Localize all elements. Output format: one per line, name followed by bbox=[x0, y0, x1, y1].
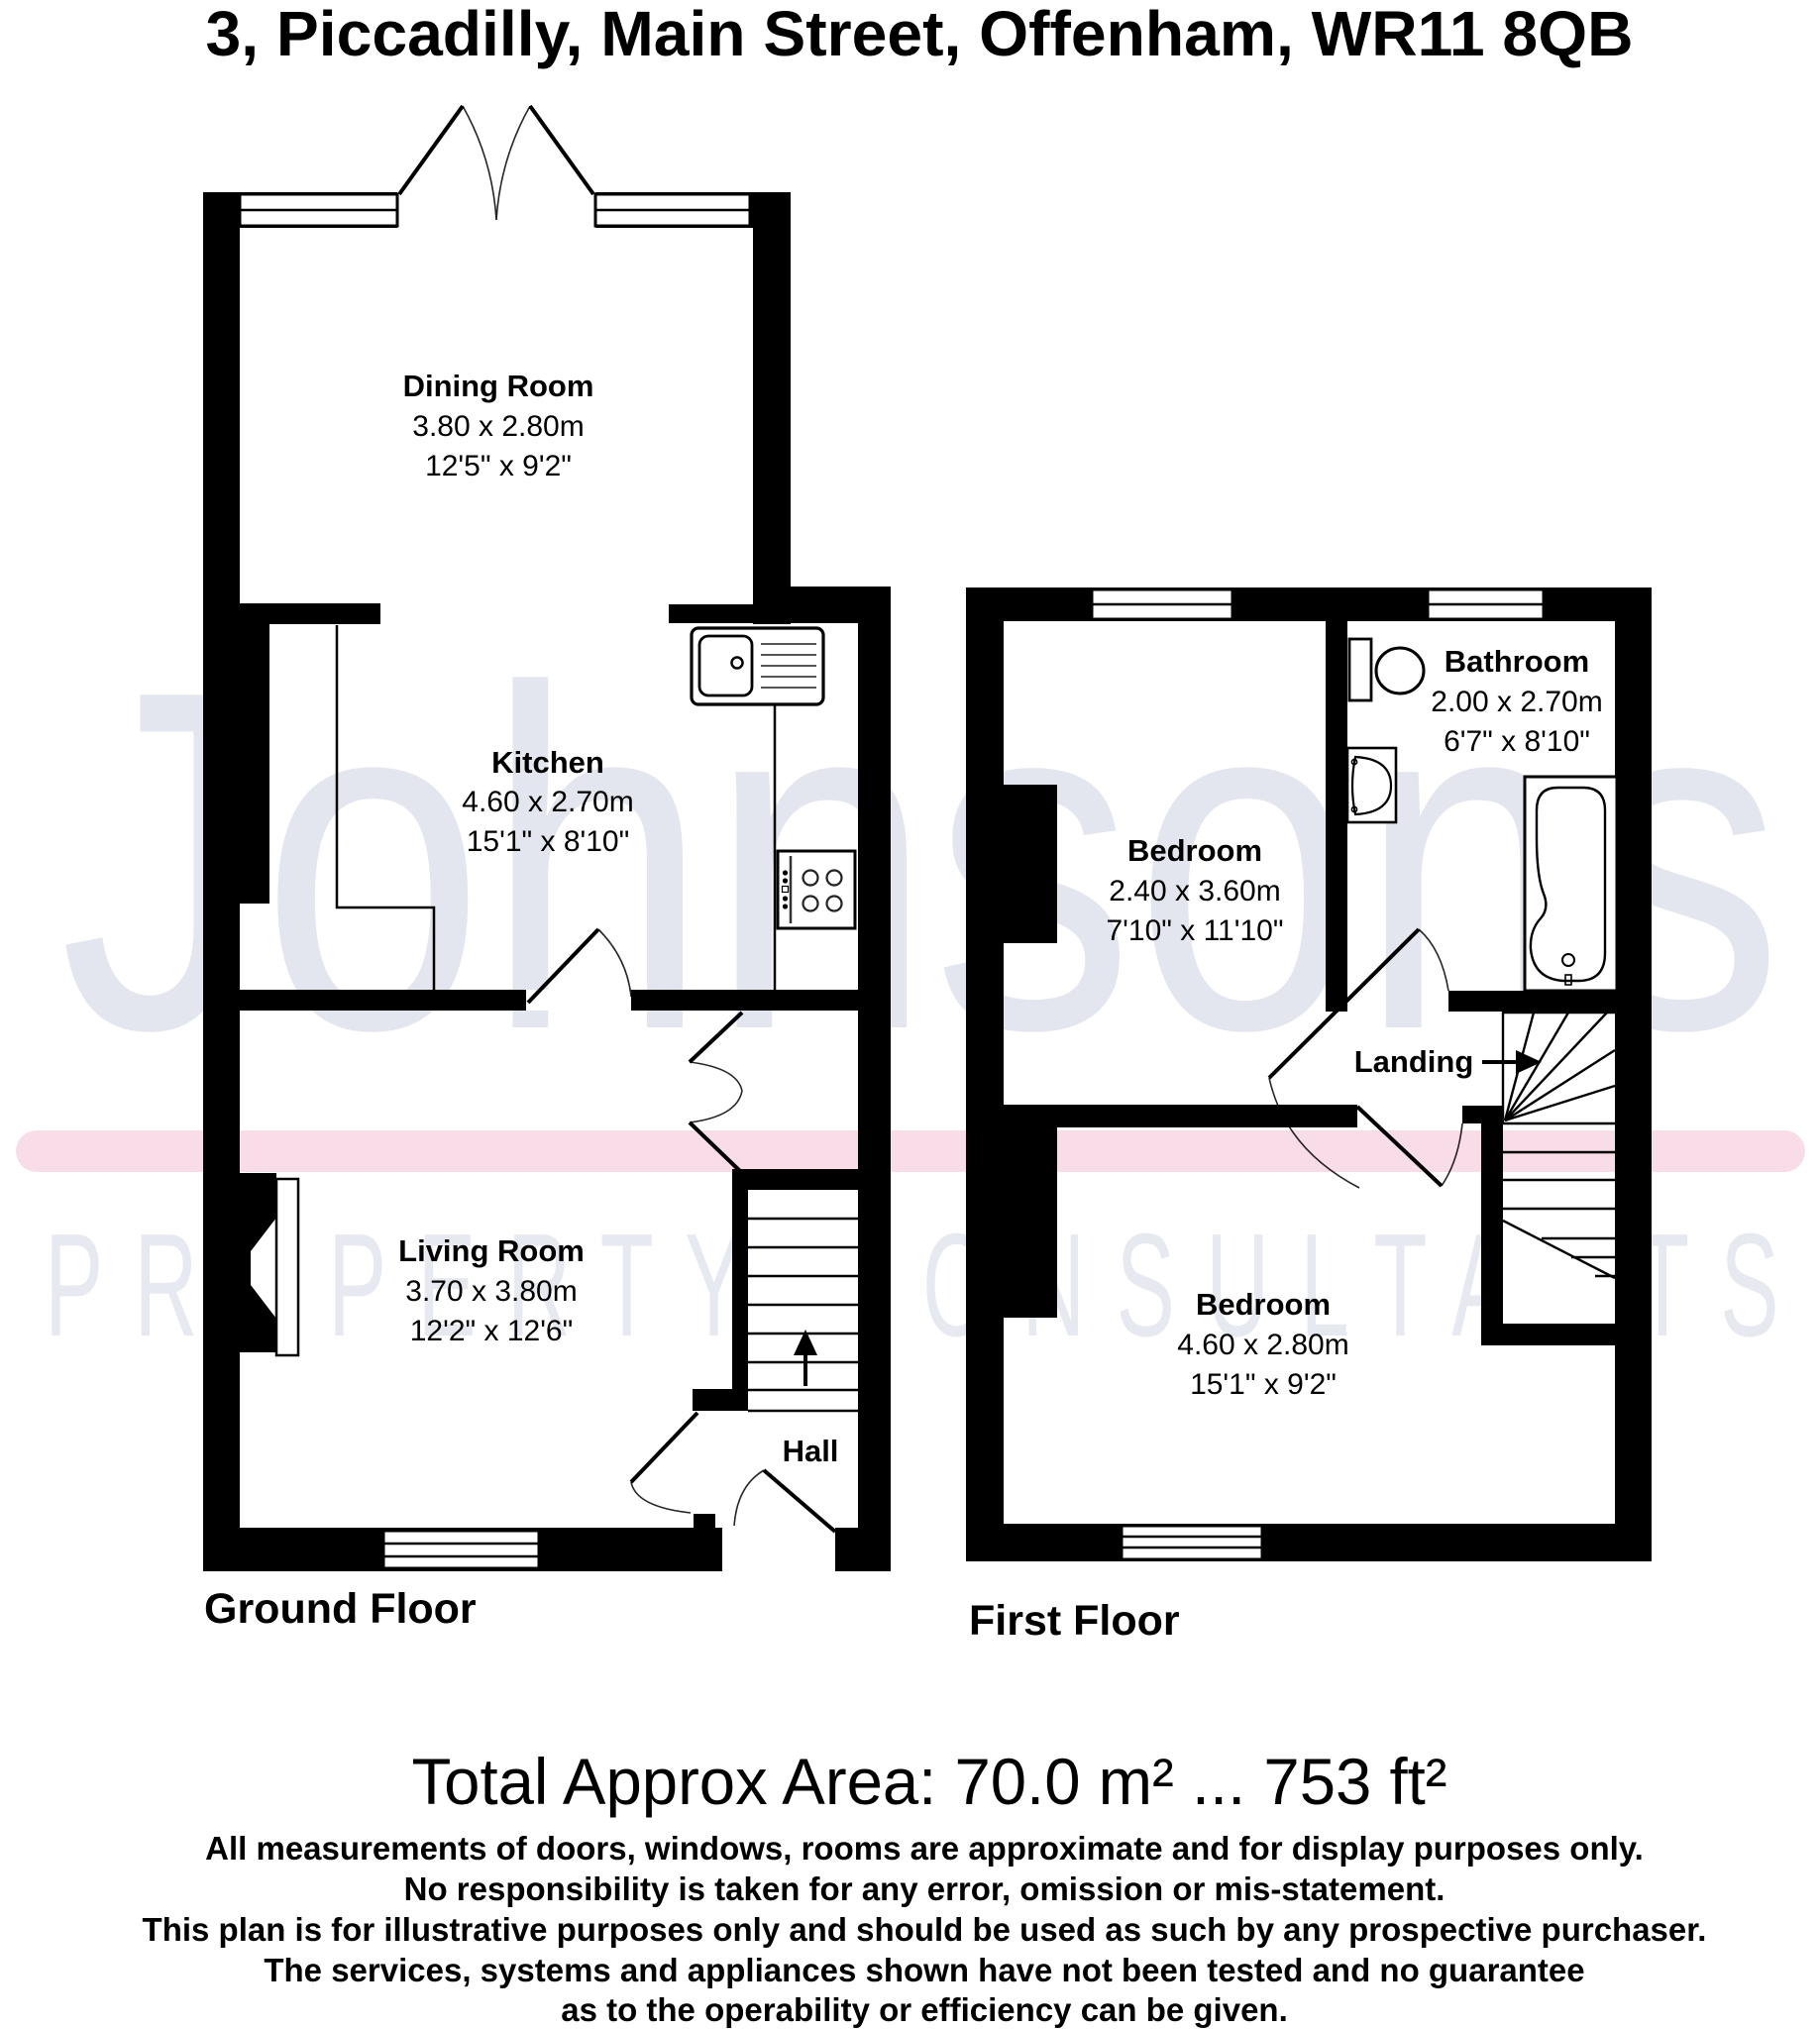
svg-text:Bathroom: Bathroom bbox=[1445, 644, 1589, 679]
svg-text:Living Room: Living Room bbox=[398, 1233, 585, 1268]
svg-text:6'7" x 8'10": 6'7" x 8'10" bbox=[1444, 725, 1590, 758]
svg-text:4.60 x 2.70m: 4.60 x 2.70m bbox=[462, 786, 633, 818]
svg-text:2.00 x 2.70m: 2.00 x 2.70m bbox=[1431, 686, 1602, 718]
svg-text:7'10" x 11'10": 7'10" x 11'10" bbox=[1107, 914, 1284, 947]
svg-text:Dining Room: Dining Room bbox=[403, 369, 594, 403]
svg-text:Total Approx Area: 70.0 m² ...: Total Approx Area: 70.0 m² ... 753 ft² bbox=[412, 1745, 1447, 1818]
svg-text:Landing: Landing bbox=[1354, 1044, 1474, 1079]
svg-text:15'1" x 8'10": 15'1" x 8'10" bbox=[467, 825, 630, 858]
svg-text:All measurements of doors, win: All measurements of doors, windows, room… bbox=[205, 1830, 1644, 1867]
svg-text:4.60 x 2.80m: 4.60 x 2.80m bbox=[1177, 1329, 1348, 1361]
svg-text:The services, systems and appl: The services, systems and appliances sho… bbox=[264, 1952, 1584, 1988]
svg-text:This plan is for illustrative: This plan is for illustrative purposes o… bbox=[143, 1911, 1707, 1948]
svg-text:3.80 x 2.80m: 3.80 x 2.80m bbox=[412, 410, 584, 443]
svg-text:Bedroom: Bedroom bbox=[1127, 833, 1262, 868]
svg-text:Hall: Hall bbox=[783, 1434, 839, 1468]
svg-text:12'5" x 9'2": 12'5" x 9'2" bbox=[425, 450, 572, 482]
svg-text:15'1" x 9'2": 15'1" x 9'2" bbox=[1190, 1368, 1337, 1401]
svg-text:Kitchen: Kitchen bbox=[491, 745, 604, 780]
svg-text:3.70 x 3.80m: 3.70 x 3.80m bbox=[405, 1275, 577, 1308]
svg-text:2.40 x 3.60m: 2.40 x 3.60m bbox=[1109, 875, 1280, 908]
svg-text:First Floor: First Floor bbox=[969, 1597, 1180, 1645]
svg-text:as to the operability or effic: as to the operability or efficiency can … bbox=[561, 1991, 1288, 2028]
svg-text:Ground Floor: Ground Floor bbox=[204, 1585, 477, 1633]
svg-text:Bedroom: Bedroom bbox=[1196, 1287, 1331, 1322]
svg-text:12'2" x 12'6": 12'2" x 12'6" bbox=[410, 1315, 574, 1347]
svg-text:No responsibility is taken for: No responsibility is taken for any error… bbox=[404, 1870, 1445, 1907]
svg-text:3, Piccadilly, Main Street, Of: 3, Piccadilly, Main Street, Offenham, WR… bbox=[206, 0, 1634, 69]
